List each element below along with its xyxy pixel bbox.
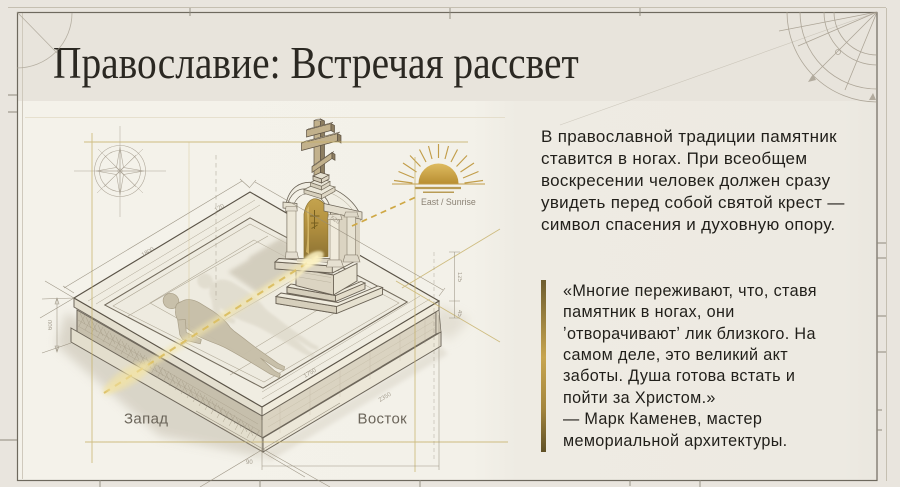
- svg-text:125: 125: [456, 272, 462, 283]
- svg-text:90: 90: [246, 460, 253, 466]
- svg-text:45: 45: [456, 310, 462, 317]
- svg-text:East / Sunrise: East / Sunrise: [421, 197, 476, 207]
- svg-text:600: 600: [48, 319, 54, 330]
- svg-text:Восток: Восток: [358, 411, 408, 428]
- svg-text:Запад: Запад: [124, 411, 168, 428]
